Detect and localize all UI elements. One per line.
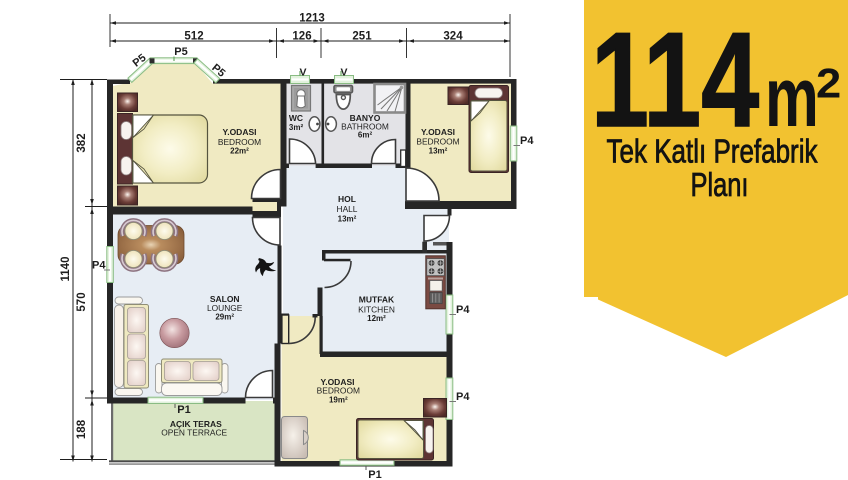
svg-text:19m²: 19m² — [329, 395, 348, 404]
svg-text:3m²: 3m² — [289, 123, 304, 132]
svg-text:KITCHEN: KITCHEN — [358, 304, 395, 314]
svg-text:1140: 1140 — [60, 257, 72, 282]
svg-text:P5: P5 — [174, 46, 187, 58]
svg-text:Y.ODASI: Y.ODASI — [421, 127, 455, 137]
svg-text:324: 324 — [443, 31, 463, 43]
svg-text:22m²: 22m² — [230, 147, 249, 156]
svg-text:BEDROOM: BEDROOM — [317, 385, 360, 395]
svg-text:382: 382 — [76, 133, 88, 152]
svg-text:126: 126 — [292, 31, 311, 43]
svg-text:570: 570 — [76, 292, 88, 311]
svg-text:Tek Katlı Prefabrik: Tek Katlı Prefabrik — [607, 133, 818, 170]
svg-text:LOUNGE: LOUNGE — [207, 303, 243, 313]
svg-text:OPEN TERRACE: OPEN TERRACE — [161, 428, 227, 438]
svg-text:WC: WC — [289, 113, 303, 123]
svg-text:P1: P1 — [177, 404, 190, 416]
svg-text:6m²: 6m² — [358, 131, 373, 140]
svg-text:13m²: 13m² — [338, 215, 357, 224]
svg-text:HALL: HALL — [337, 204, 358, 214]
svg-text:188: 188 — [76, 419, 88, 439]
svg-text:512: 512 — [184, 31, 203, 43]
svg-text:1213: 1213 — [299, 13, 325, 25]
svg-text:BEDROOM: BEDROOM — [416, 137, 459, 147]
svg-text:29m²: 29m² — [215, 313, 234, 322]
svg-text:m: m — [765, 50, 819, 144]
svg-text:Planı: Planı — [691, 166, 749, 203]
svg-text:251: 251 — [352, 31, 372, 43]
svg-text:2: 2 — [816, 60, 841, 107]
svg-text:MUTFAK: MUTFAK — [359, 294, 395, 304]
svg-text:12m²: 12m² — [367, 314, 386, 323]
svg-text:P4: P4 — [520, 135, 534, 147]
svg-text:P4: P4 — [456, 391, 470, 403]
svg-text:Y.ODASI: Y.ODASI — [222, 127, 256, 137]
svg-text:P1: P1 — [368, 469, 381, 480]
svg-text:HOL: HOL — [338, 194, 356, 204]
svg-text:13m²: 13m² — [429, 147, 448, 156]
svg-text:P4: P4 — [456, 304, 470, 316]
svg-text:BEDROOM: BEDROOM — [218, 137, 261, 147]
